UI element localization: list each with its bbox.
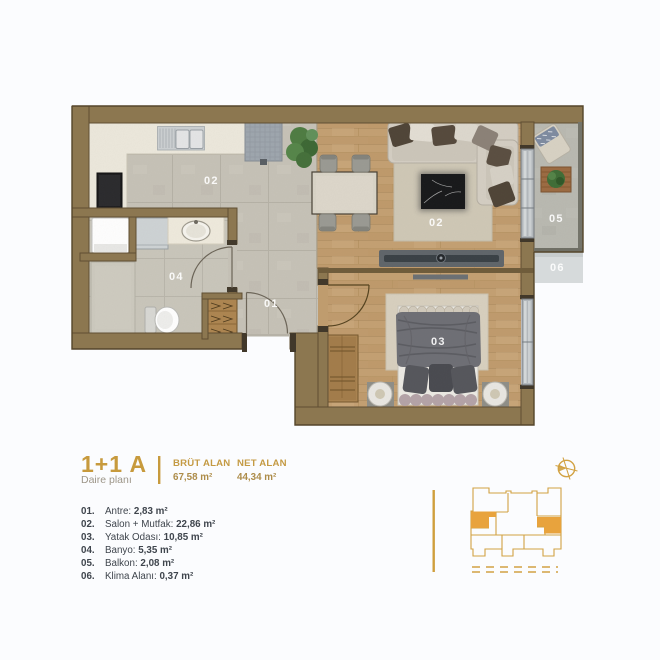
svg-text:Daire planı: Daire planı bbox=[81, 474, 132, 486]
svg-text:02: 02 bbox=[204, 175, 219, 187]
svg-text:Klima Alanı: 0,37 m²: Klima Alanı: 0,37 m² bbox=[105, 571, 194, 582]
svg-text:02.: 02. bbox=[81, 519, 95, 530]
svg-text:04: 04 bbox=[169, 271, 184, 283]
svg-text:03.: 03. bbox=[81, 532, 95, 543]
svg-text:Balkon: 2,08 m²: Balkon: 2,08 m² bbox=[105, 558, 175, 569]
svg-text:01.: 01. bbox=[81, 506, 95, 517]
svg-text:06: 06 bbox=[550, 262, 565, 274]
svg-text:BRÜT ALAN: BRÜT ALAN bbox=[173, 458, 230, 469]
svg-text:Salon + Mutfak: 22,86 m²: Salon + Mutfak: 22,86 m² bbox=[105, 519, 216, 530]
svg-text:Antre: 2,83 m²: Antre: 2,83 m² bbox=[105, 506, 168, 517]
svg-text:03: 03 bbox=[431, 336, 446, 348]
svg-text:04.: 04. bbox=[81, 545, 95, 556]
svg-text:01: 01 bbox=[264, 298, 279, 310]
svg-text:67,58 m²: 67,58 m² bbox=[173, 472, 213, 483]
svg-text:02: 02 bbox=[429, 217, 444, 229]
svg-text:05: 05 bbox=[549, 213, 564, 225]
svg-text:NET ALAN: NET ALAN bbox=[237, 458, 287, 469]
svg-text:06.: 06. bbox=[81, 571, 95, 582]
svg-text:Banyo: 5,35 m²: Banyo: 5,35 m² bbox=[105, 545, 173, 556]
svg-text:Yatak Odası: 10,85 m²: Yatak Odası: 10,85 m² bbox=[105, 532, 204, 543]
svg-text:44,34 m²: 44,34 m² bbox=[237, 472, 277, 483]
svg-text:05.: 05. bbox=[81, 558, 95, 569]
